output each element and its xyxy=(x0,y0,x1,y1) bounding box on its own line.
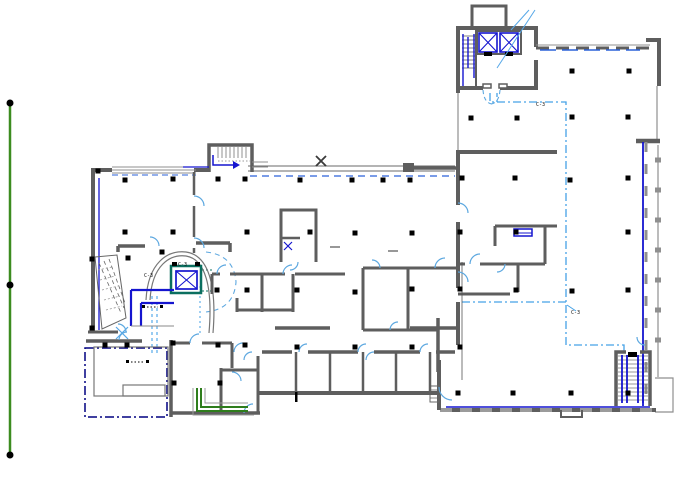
column-dot xyxy=(626,391,631,396)
tick-mark xyxy=(330,247,398,251)
column-dot xyxy=(353,290,358,295)
column-dot xyxy=(216,343,221,348)
column-dot xyxy=(160,250,165,255)
column-dot xyxy=(458,345,463,350)
column-dot xyxy=(218,381,223,386)
fixture-mark xyxy=(160,305,163,308)
column-dot xyxy=(216,177,221,182)
stair-treads xyxy=(218,147,246,158)
reference-node xyxy=(7,282,14,289)
reference-node xyxy=(7,100,14,107)
column-dot xyxy=(570,289,575,294)
door-arc xyxy=(290,262,298,270)
elevator-x xyxy=(479,33,518,52)
column-dot xyxy=(568,178,573,183)
column-dot xyxy=(569,391,574,396)
column-dot xyxy=(103,343,108,348)
fixture-mark xyxy=(146,360,149,363)
reference-node xyxy=(7,452,14,459)
column-dot xyxy=(172,381,177,386)
cad-canvas: C-3C-3C-3C-3 xyxy=(0,0,681,481)
column-dot xyxy=(514,230,519,235)
column-dot xyxy=(295,288,300,293)
column-dot xyxy=(353,231,358,236)
floor-plan-svg: C-3C-3C-3C-3 xyxy=(0,0,681,481)
column-dot xyxy=(381,178,386,183)
column-dot xyxy=(456,391,461,396)
column-dot xyxy=(215,288,220,293)
column-dot xyxy=(295,345,300,350)
column-dot xyxy=(298,178,303,183)
label-c3: C-3 xyxy=(144,273,153,279)
door-arc xyxy=(299,344,307,352)
window-band xyxy=(112,167,196,173)
label-c3: C-3 xyxy=(178,262,187,268)
door-leaf xyxy=(499,84,507,88)
planter-edge xyxy=(205,388,248,403)
column-dot xyxy=(171,230,176,235)
direction-arrow xyxy=(233,161,240,169)
x-mark xyxy=(316,156,326,166)
column-dot xyxy=(458,230,463,235)
column-dot xyxy=(243,343,248,348)
elevator-x xyxy=(176,271,197,289)
column-dot xyxy=(626,115,631,120)
door-jamb xyxy=(172,262,177,266)
room-outline xyxy=(94,347,168,396)
wall-rooms xyxy=(363,268,458,330)
door-arc xyxy=(420,344,428,352)
fixture-mark xyxy=(142,305,145,308)
stair-rail-blue xyxy=(213,155,236,165)
column-dot xyxy=(90,326,95,331)
fixture-x xyxy=(284,242,292,250)
wall-partition xyxy=(296,352,430,393)
wall-pantry xyxy=(495,226,557,264)
door-arc xyxy=(194,196,204,206)
label-c3: C-3 xyxy=(571,310,580,316)
boundary-dash-rect xyxy=(85,348,167,417)
wall-shaft xyxy=(472,6,506,27)
column-dot xyxy=(570,115,575,120)
column-dot xyxy=(123,178,128,183)
label-c3: C-3 xyxy=(536,102,545,108)
column-dot xyxy=(627,69,632,74)
column-dot xyxy=(126,256,131,261)
fixture-mark xyxy=(126,360,129,363)
column-dot xyxy=(90,257,95,262)
column-dot xyxy=(96,169,101,174)
column-dot xyxy=(171,341,176,346)
column-dot xyxy=(469,116,474,121)
cable-route xyxy=(490,93,624,354)
cable-route xyxy=(152,296,157,353)
wall-lobby xyxy=(118,243,230,252)
column-dot xyxy=(171,177,176,182)
door-arc xyxy=(150,237,159,246)
stair-wall xyxy=(209,145,252,172)
door-arc xyxy=(232,372,241,381)
escalator-rungs xyxy=(98,267,122,310)
wall-hall-room xyxy=(281,210,316,262)
column-dot xyxy=(125,343,130,348)
column-dot xyxy=(515,116,520,121)
column-dot xyxy=(570,69,575,74)
column-dot xyxy=(410,345,415,350)
column-dot xyxy=(243,177,248,182)
door-arc xyxy=(190,334,199,343)
glazing-diagonal xyxy=(497,10,535,68)
wall-rooms xyxy=(171,343,232,368)
door-arc xyxy=(366,352,374,360)
door-arc xyxy=(358,344,366,352)
column-dot xyxy=(513,176,518,181)
column-dot xyxy=(245,288,250,293)
column-dot xyxy=(245,230,250,235)
column-dot xyxy=(626,288,631,293)
column-dot xyxy=(410,287,415,292)
column-dot xyxy=(408,178,413,183)
door-arc xyxy=(244,352,252,360)
door-arc xyxy=(470,254,480,264)
column-dot xyxy=(458,287,463,292)
stair-landing xyxy=(628,352,637,357)
column-dot xyxy=(308,230,313,235)
door-arc xyxy=(234,343,243,352)
planter-green xyxy=(201,388,248,407)
column-dot xyxy=(514,288,519,293)
column-dot xyxy=(626,176,631,181)
elevator-frame xyxy=(477,31,521,54)
table xyxy=(123,385,165,396)
column-dot xyxy=(353,345,358,350)
wall-pier xyxy=(403,163,414,172)
canopy-outline xyxy=(655,378,673,412)
column-dot xyxy=(626,230,631,235)
counterweight xyxy=(484,52,492,56)
column-dot xyxy=(511,391,516,396)
column-dot xyxy=(350,178,355,183)
column-dot xyxy=(123,230,128,235)
door-jamb xyxy=(195,262,200,266)
column-dot xyxy=(410,231,415,236)
column-dot xyxy=(460,176,465,181)
door-leaf xyxy=(483,84,491,88)
door-mark xyxy=(295,392,298,402)
